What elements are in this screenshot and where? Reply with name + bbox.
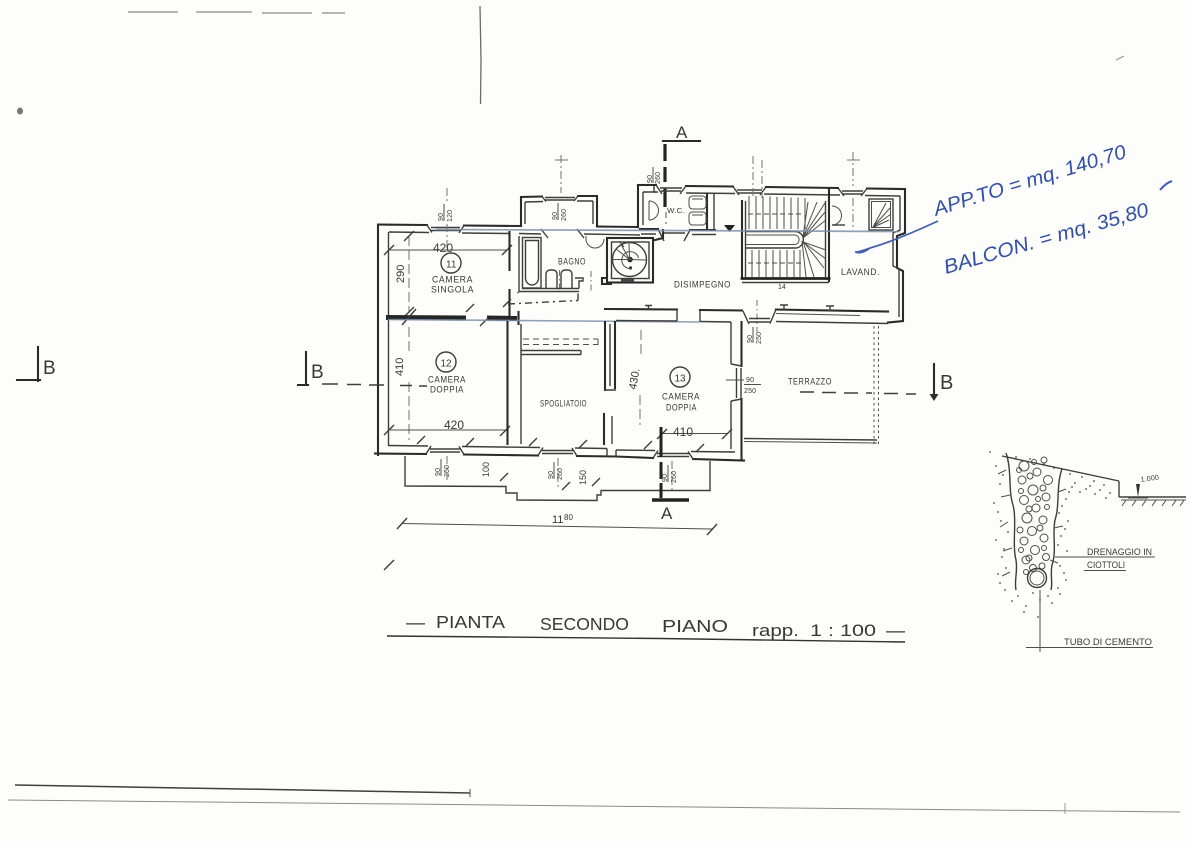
svg-text:A: A <box>661 504 673 523</box>
svg-text:1 : 100: 1 : 100 <box>810 622 876 640</box>
svg-text:BAGNO: BAGNO <box>558 257 586 267</box>
svg-text:14: 14 <box>778 284 786 291</box>
svg-text:LAVAND.: LAVAND. <box>841 267 880 277</box>
svg-text:—: — <box>406 613 425 634</box>
svg-text:260: 260 <box>561 209 568 221</box>
svg-text:CAMERA: CAMERA <box>432 275 473 285</box>
svg-text:410: 410 <box>673 425 693 439</box>
svg-text:410: 410 <box>394 358 406 376</box>
svg-text:150: 150 <box>578 470 588 485</box>
svg-text:80: 80 <box>564 513 573 522</box>
svg-text:PIANTA: PIANTA <box>436 612 505 632</box>
svg-text:290: 290 <box>395 265 407 283</box>
svg-text:100: 100 <box>481 462 491 477</box>
svg-text:250: 250 <box>444 465 451 477</box>
svg-text:B: B <box>311 362 324 383</box>
svg-text:TUBO DI CEMENTO: TUBO DI CEMENTO <box>1064 637 1152 648</box>
svg-text:DRENAGGIO IN: DRENAGGIO IN <box>1087 547 1152 558</box>
svg-text:B: B <box>940 372 953 394</box>
svg-text:A: A <box>676 123 688 142</box>
svg-text:SINGOLA: SINGOLA <box>431 285 474 295</box>
svg-text:SPOGLIATOIO: SPOGLIATOIO <box>540 399 587 409</box>
svg-text:13: 13 <box>675 374 687 385</box>
svg-text:—: — <box>886 621 905 642</box>
svg-text:DOPPIA: DOPPIA <box>666 403 697 413</box>
svg-text:250: 250 <box>756 332 763 344</box>
svg-text:W.C.: W.C. <box>667 208 685 215</box>
svg-text:11: 11 <box>446 260 457 271</box>
svg-text:DISIMPEGNO: DISIMPEGNO <box>674 280 731 290</box>
svg-text:11: 11 <box>552 514 563 526</box>
svg-text:SECONDO: SECONDO <box>540 614 629 634</box>
svg-text:rapp.: rapp. <box>752 622 799 640</box>
svg-text:120: 120 <box>447 210 454 222</box>
svg-text:260: 260 <box>655 172 662 184</box>
svg-text:CAMERA: CAMERA <box>428 375 466 385</box>
svg-text:B: B <box>43 358 56 379</box>
svg-text:420: 420 <box>444 418 464 432</box>
svg-text:TERRAZZO: TERRAZZO <box>788 377 832 387</box>
svg-text:DOPPIA: DOPPIA <box>430 385 464 395</box>
svg-text:90: 90 <box>746 377 754 384</box>
svg-text:CAMERA: CAMERA <box>662 392 700 402</box>
svg-text:250: 250 <box>744 388 756 395</box>
svg-text:12: 12 <box>441 359 453 370</box>
svg-text:PIANO: PIANO <box>662 616 728 636</box>
svg-text:CIOTTOLI: CIOTTOLI <box>1087 560 1125 571</box>
